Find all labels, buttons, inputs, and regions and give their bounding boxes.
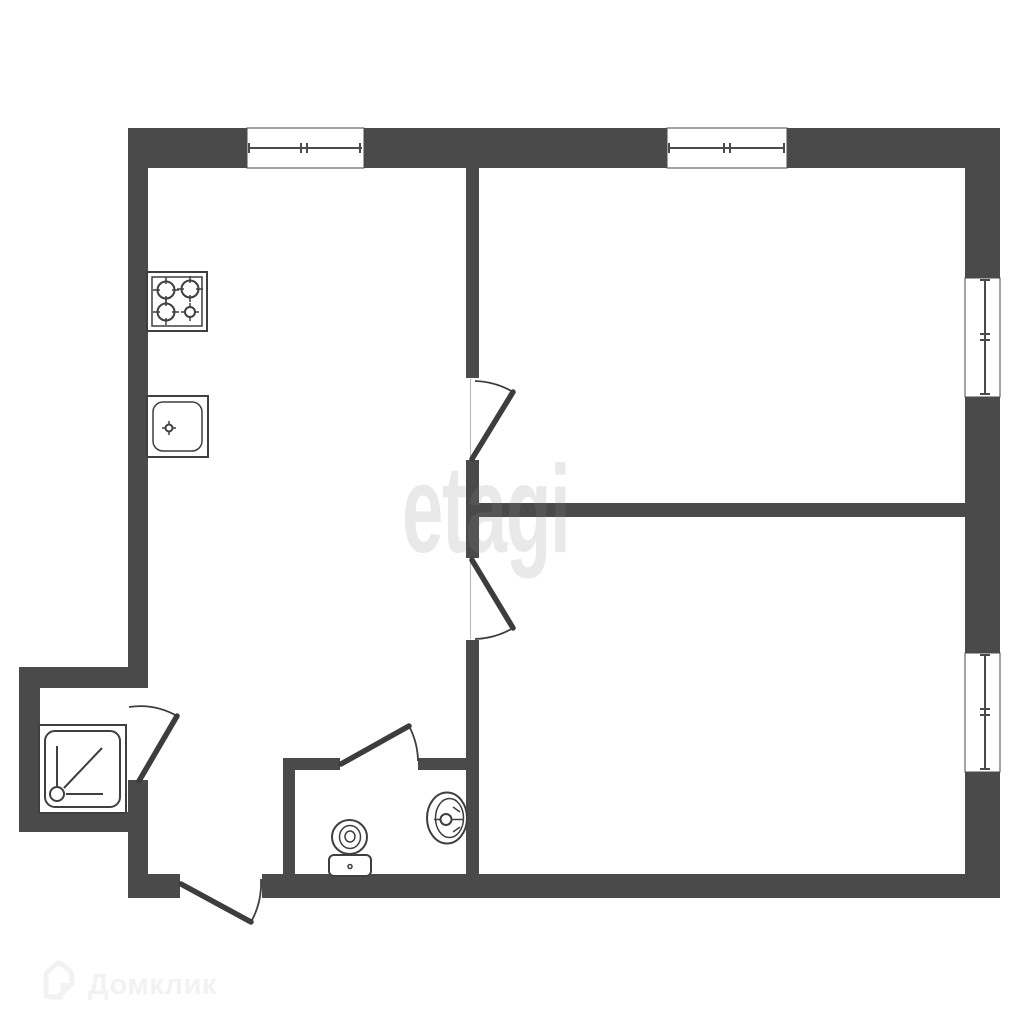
door-swing-arc xyxy=(475,628,513,639)
wall-right xyxy=(965,128,1000,898)
domclick-logo: Домклик xyxy=(38,955,217,1001)
washbasin-icon xyxy=(427,793,467,844)
floor-plan-image: etagi Домклик xyxy=(0,0,1024,1024)
interior-walls xyxy=(283,168,965,874)
toilet-icon xyxy=(329,820,371,876)
stove-icon xyxy=(147,272,207,331)
opening-entry-door xyxy=(180,874,262,898)
window-frame xyxy=(965,278,1000,397)
door-bathroom xyxy=(341,726,418,764)
window-frame xyxy=(965,653,1000,772)
domclick-logo-text: Домклик xyxy=(88,957,217,1000)
door-swing-arc xyxy=(475,381,513,392)
kitchen-sink-icon xyxy=(147,396,208,457)
wall-hall-lower xyxy=(466,640,479,874)
wall-bath-left xyxy=(283,758,295,874)
window-bedroom-top xyxy=(667,128,787,168)
wall-bath-top-right xyxy=(418,758,466,770)
niche-wall-left xyxy=(19,667,40,832)
door-swing-arc xyxy=(409,726,418,761)
wall-bath-top-left xyxy=(283,758,340,770)
window-bedroom-right xyxy=(965,278,1000,397)
window-room-bottom-right xyxy=(965,653,1000,772)
window-kitchen xyxy=(247,128,364,168)
niche-wall-bottom xyxy=(19,812,128,832)
domclick-house-icon xyxy=(38,955,80,1001)
etagi-watermark: etagi xyxy=(402,448,570,572)
shower-tray-icon xyxy=(39,725,126,813)
toilet-tank xyxy=(329,855,371,876)
door-leaf xyxy=(341,726,409,764)
wall-hall-upper xyxy=(466,168,479,378)
